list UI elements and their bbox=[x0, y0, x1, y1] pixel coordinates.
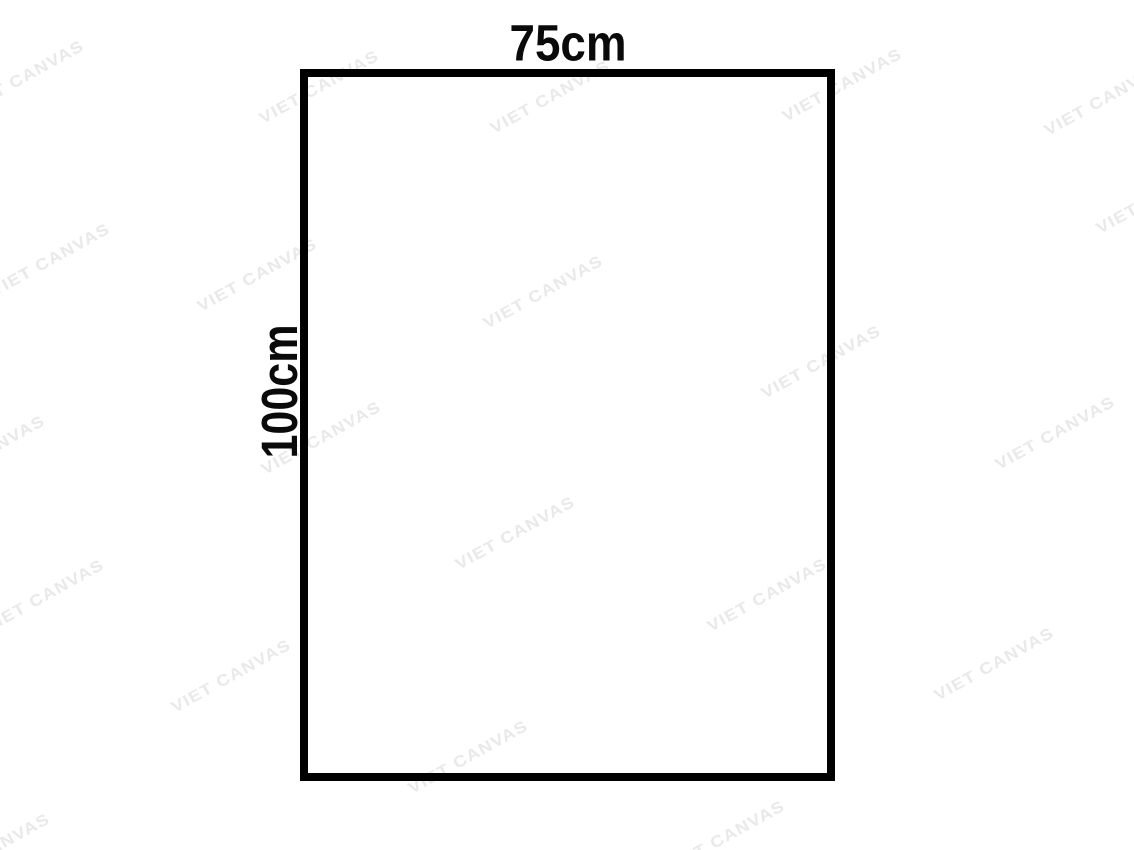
svg-text:100cm: 100cm bbox=[251, 325, 308, 459]
svg-text:75cm: 75cm bbox=[510, 15, 627, 72]
